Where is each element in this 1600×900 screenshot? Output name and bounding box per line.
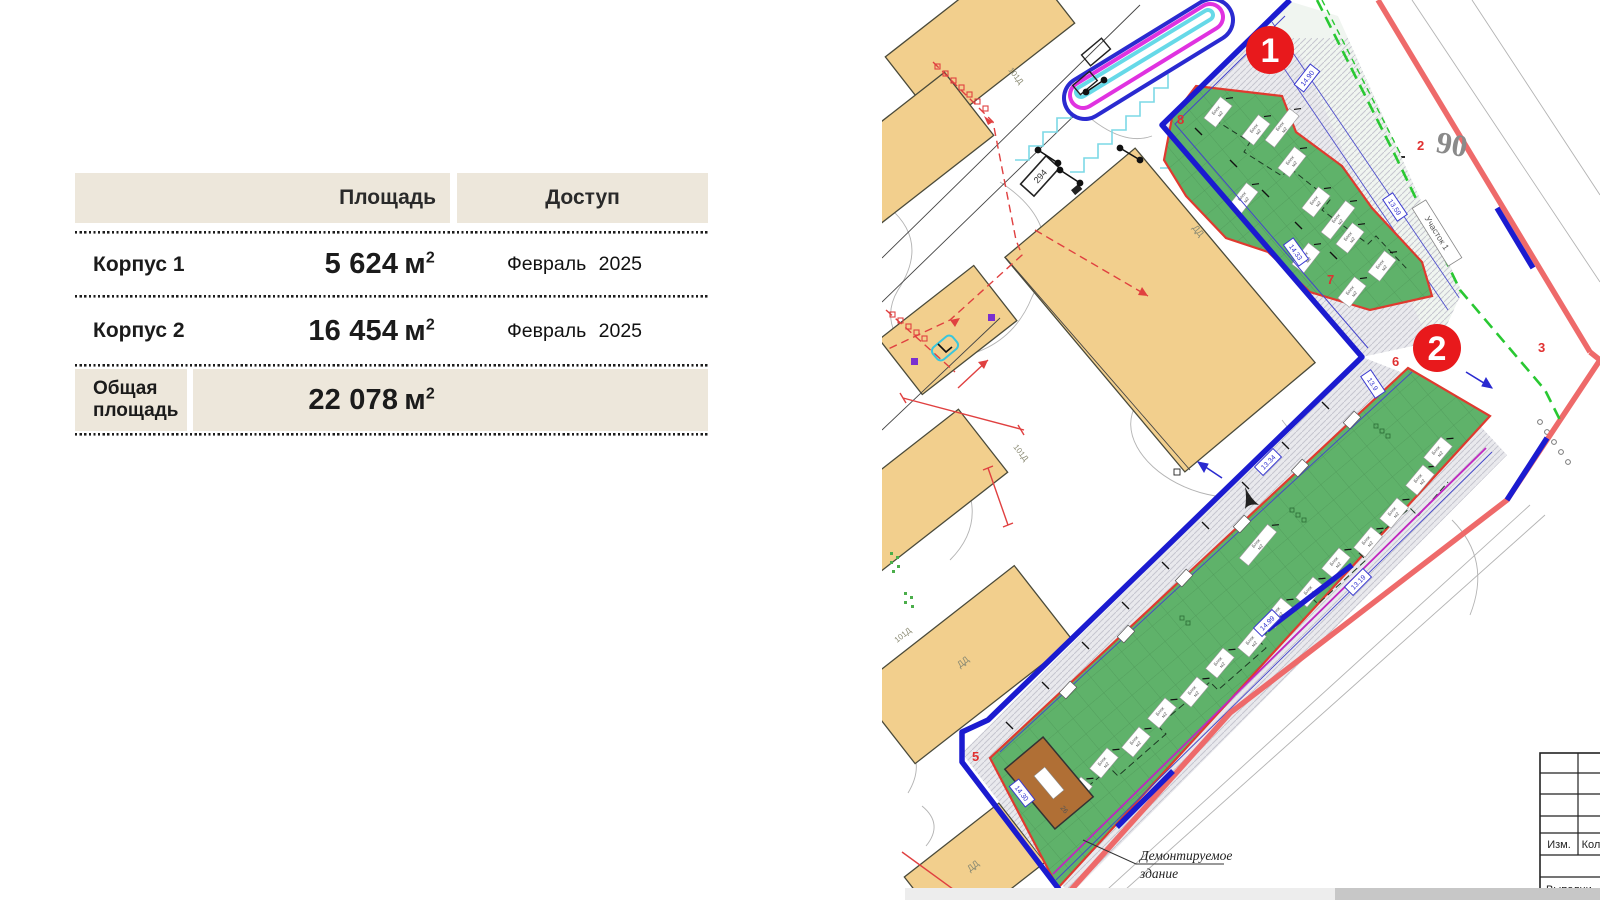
table-row: Корпус 1 5 624 м2 Февраль 2025 xyxy=(75,234,708,295)
svg-text:101Д: 101Д xyxy=(893,626,914,645)
table-row-total: Общая площадь 22 078 м2 xyxy=(75,367,708,433)
svg-text:Демонтируемое: Демонтируемое xyxy=(1138,848,1232,863)
row-area: 16 454 м2 xyxy=(205,315,435,348)
horizontal-scrollbar-thumb[interactable] xyxy=(1335,888,1600,900)
row-area: 22 078 м2 xyxy=(205,384,435,417)
column-header-area-label: Площадь xyxy=(339,186,436,210)
table-header: Площадь Доступ xyxy=(75,173,708,223)
svg-text:Кол: Кол xyxy=(1582,839,1600,851)
table-row: Корпус 2 16 454 м2 Февраль 2025 xyxy=(75,298,708,364)
svg-text:101Д: 101Д xyxy=(1006,66,1025,87)
row-name: Общая площадь xyxy=(93,378,193,423)
marker-2: 2 xyxy=(1413,324,1461,372)
column-header-area: Площадь xyxy=(75,173,450,223)
summary-table: Площадь Доступ Корпус 1 5 624 м2 Февраль… xyxy=(75,173,708,436)
column-header-access-label: Доступ xyxy=(545,186,620,210)
marker-1: 1 xyxy=(1246,26,1294,74)
svg-text:1: 1 xyxy=(1261,32,1280,70)
svg-text:2: 2 xyxy=(1428,330,1447,368)
row-name: Корпус 2 xyxy=(93,319,185,343)
boundary-point-number: 2 xyxy=(1417,138,1424,153)
street-number-label: 90 xyxy=(1434,124,1471,164)
boundary-point-number: 7 xyxy=(1327,272,1334,287)
boundary-point-number: 8 xyxy=(1177,112,1184,127)
boundary-point-number: 6 xyxy=(1392,354,1399,369)
row-access: Февраль 2025 xyxy=(441,320,708,343)
svg-text:Изм.: Изм. xyxy=(1547,839,1571,851)
column-header-access: Доступ xyxy=(457,173,708,223)
row-name: Корпус 1 xyxy=(93,253,185,277)
boundary-point-number: 5 xyxy=(972,749,979,764)
title-block: Изм. Кол Выполни xyxy=(1540,753,1600,900)
horizontal-scrollbar-track[interactable] xyxy=(905,888,1600,900)
screenshot-root: Площадь Доступ Корпус 1 5 624 м2 Февраль… xyxy=(0,0,1600,900)
svg-text:здание: здание xyxy=(1139,866,1178,881)
site-plan-map: 101Д 101Д 101Д ДД ДД ДД xyxy=(882,0,1600,900)
svg-text:101Д: 101Д xyxy=(1011,443,1030,464)
dotted-divider xyxy=(75,433,708,436)
row-area: 5 624 м2 xyxy=(205,248,435,281)
row-access: Февраль 2025 xyxy=(441,253,708,276)
boundary-point-number: 3 xyxy=(1538,340,1545,355)
